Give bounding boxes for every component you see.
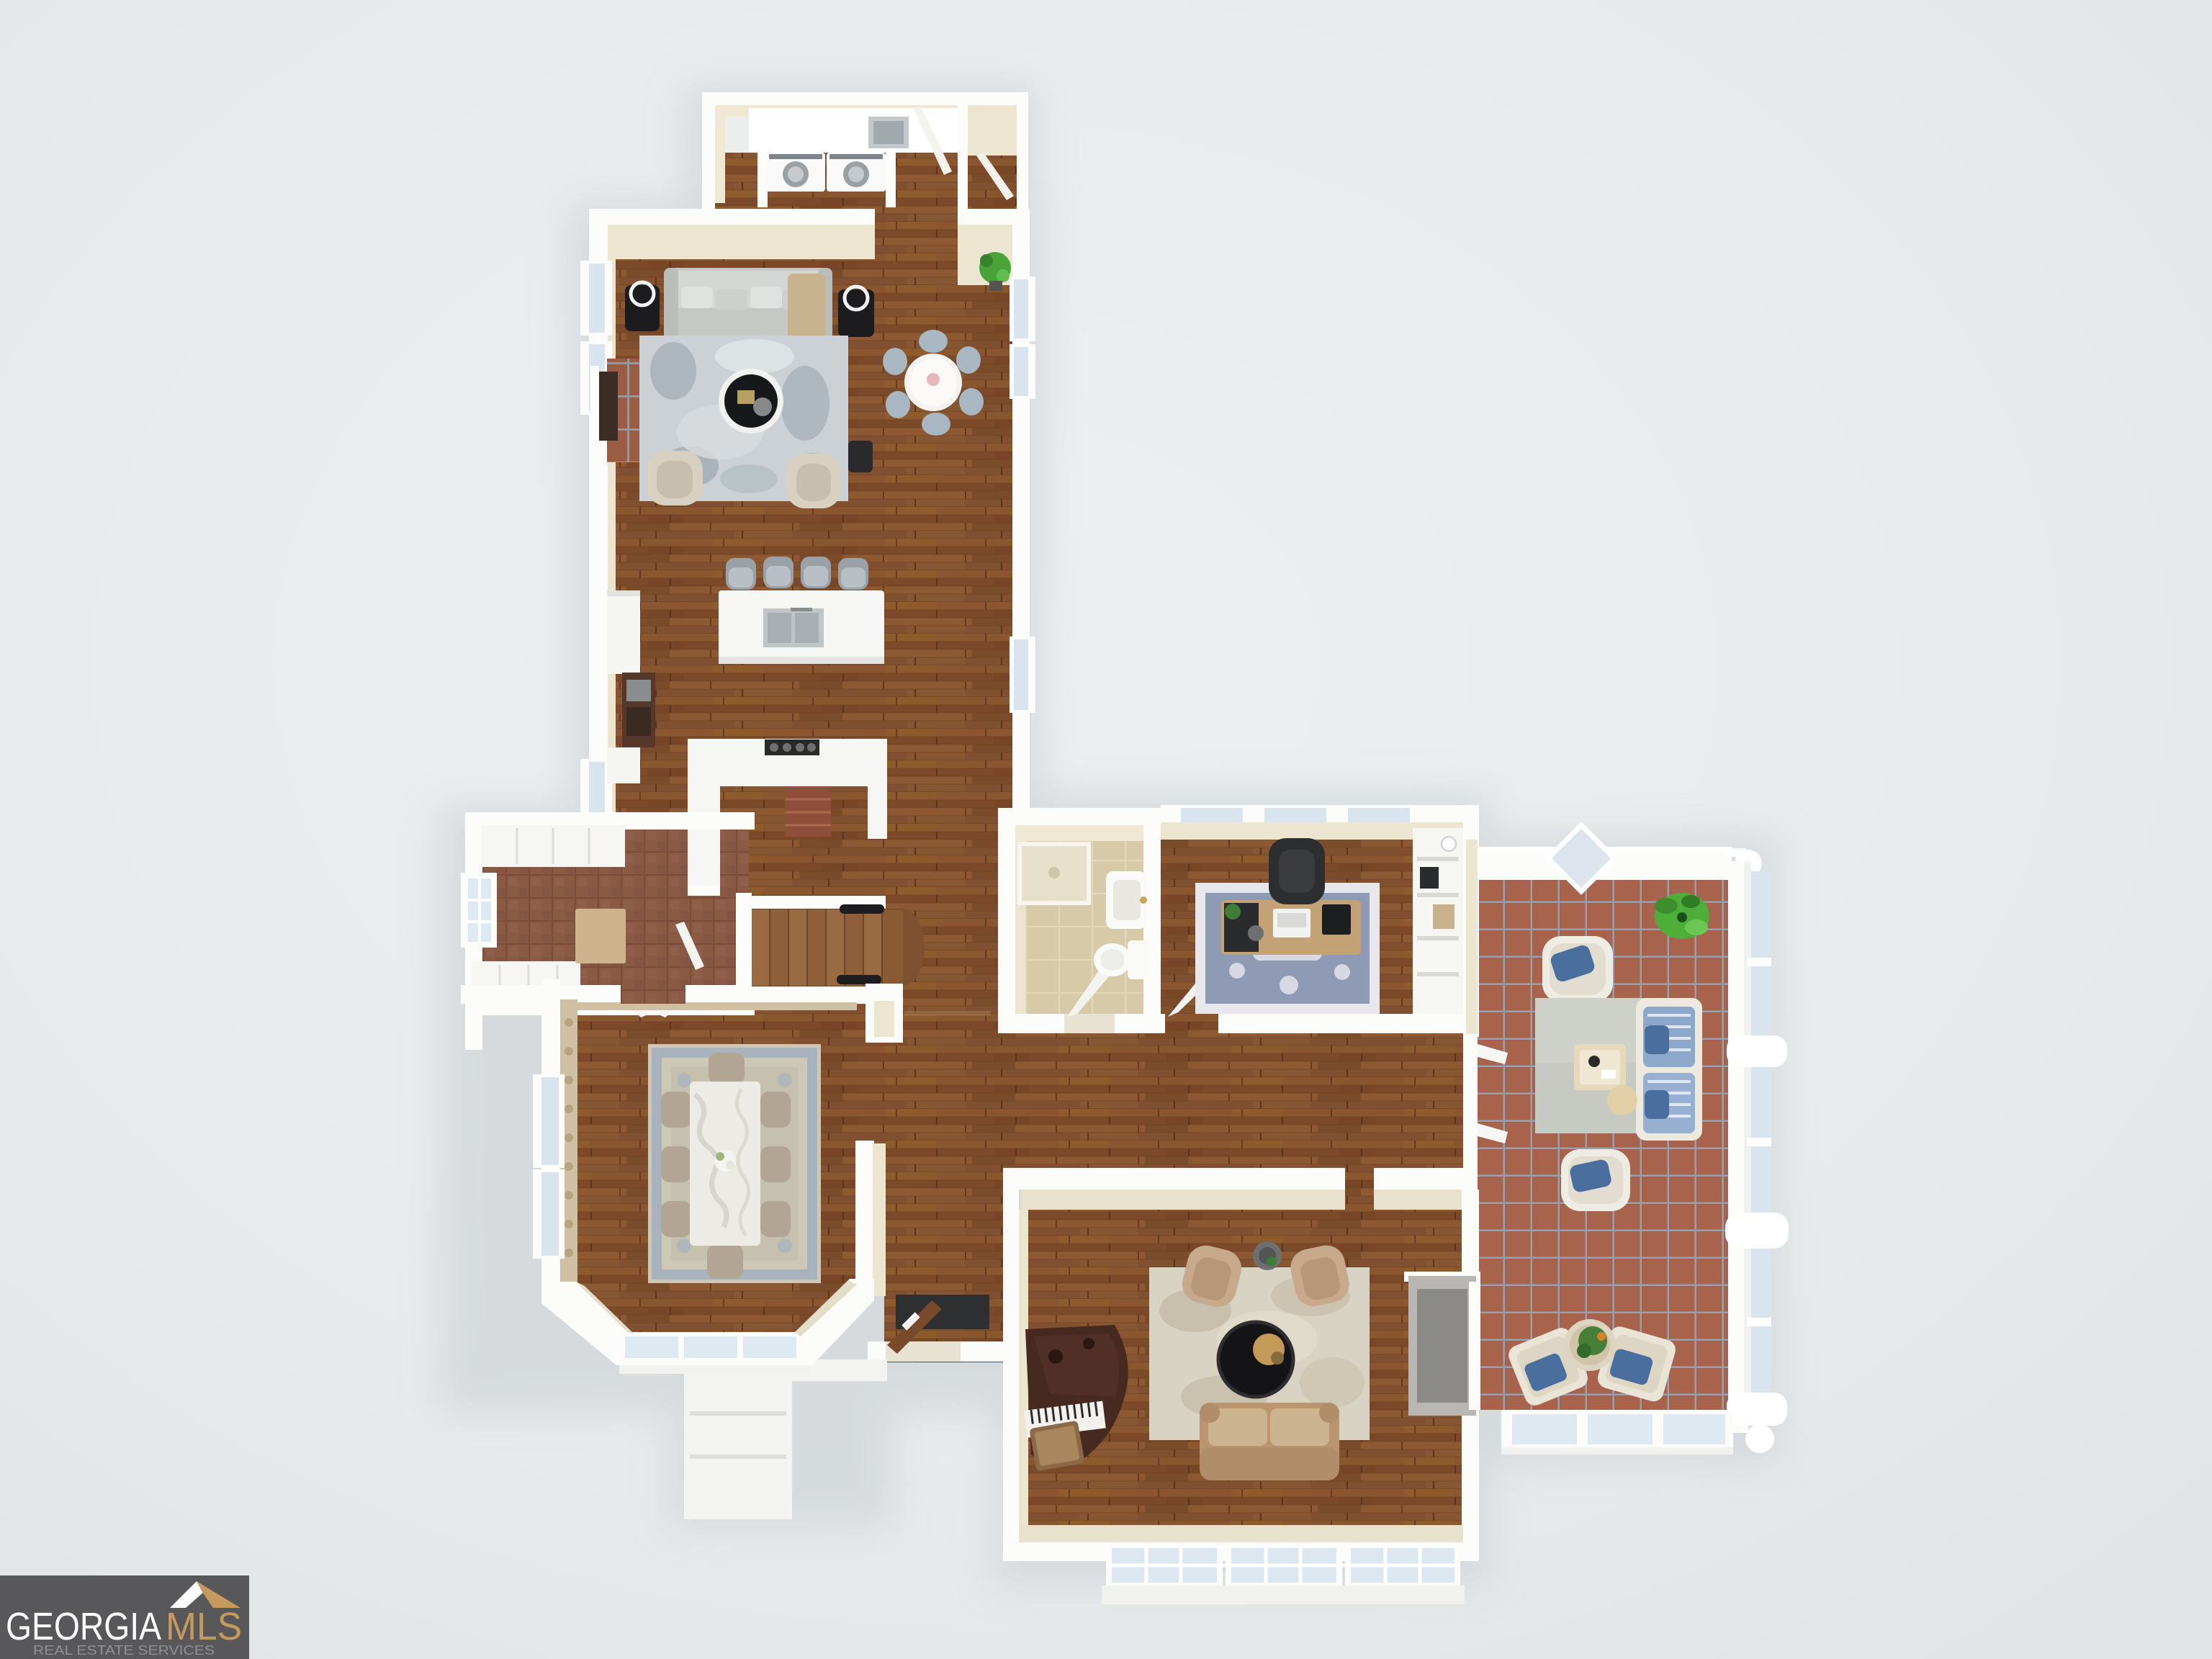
svg-text:GEORGIA: GEORGIA <box>6 1605 161 1648</box>
svg-text:MLS: MLS <box>166 1605 242 1648</box>
svg-text:REAL ESTATE SERVICES: REAL ESTATE SERVICES <box>33 1643 215 1658</box>
